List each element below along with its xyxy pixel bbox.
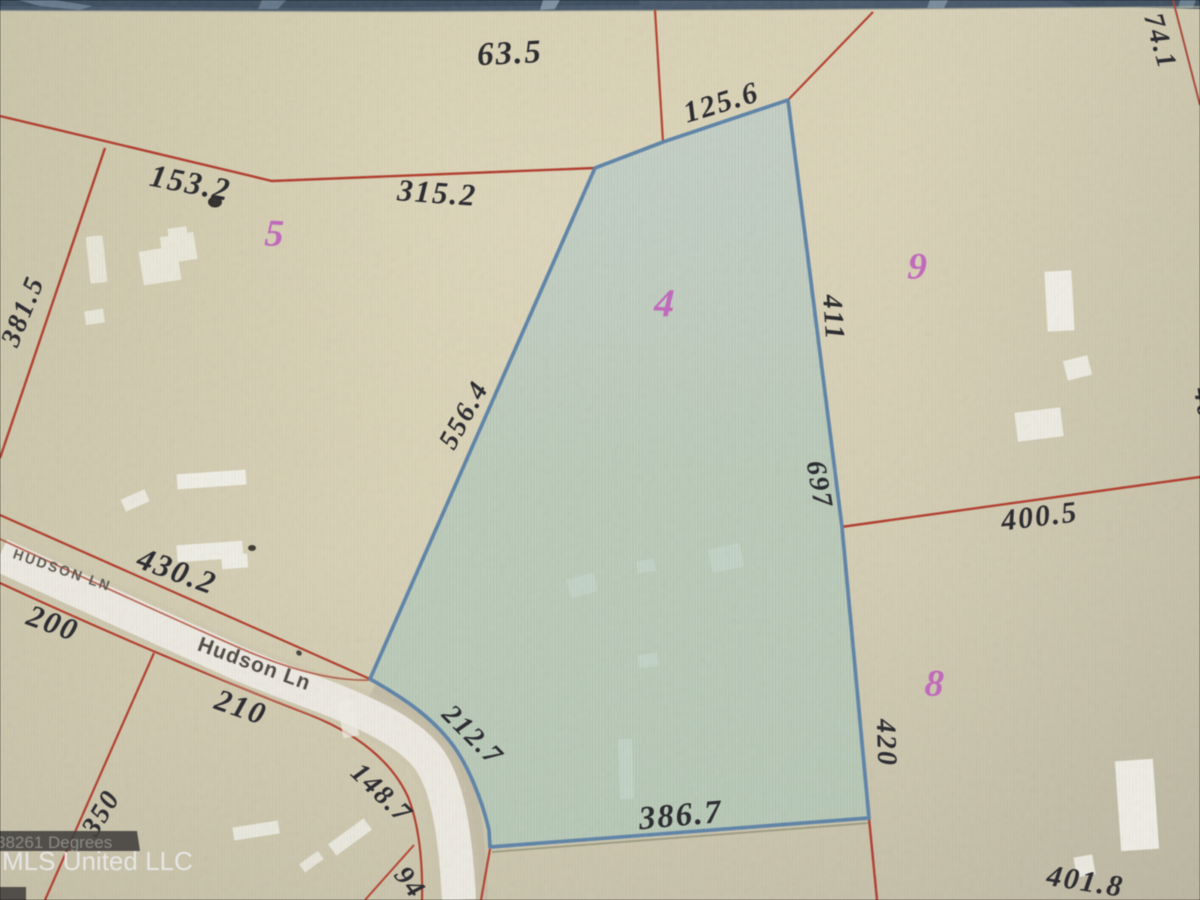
svg-text:MLS United LLC: MLS United LLC [2,846,193,876]
